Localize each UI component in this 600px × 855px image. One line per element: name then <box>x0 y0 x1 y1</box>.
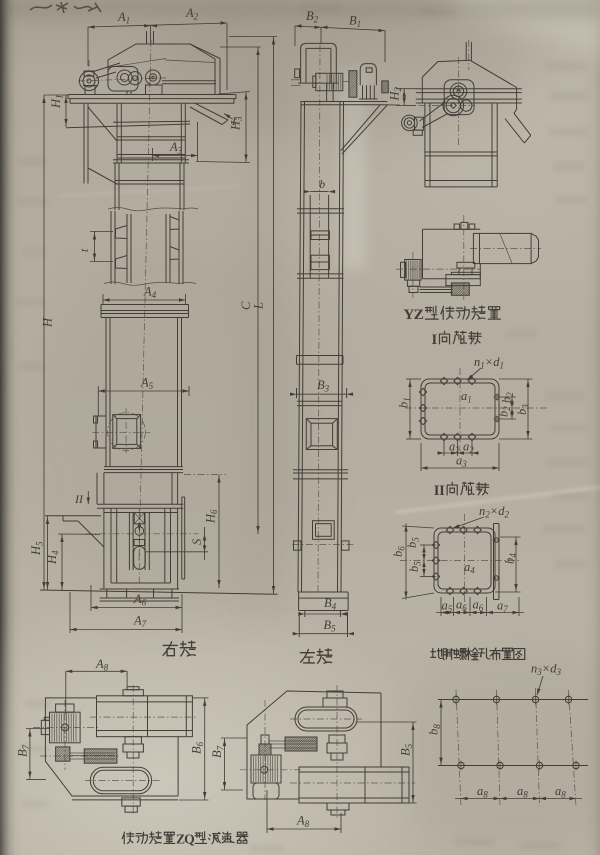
svg-text:a7: a7 <box>497 599 508 615</box>
svg-text:b4: b4 <box>503 553 519 564</box>
svg-text:A7: A7 <box>133 614 147 630</box>
svg-text:A1: A1 <box>117 10 130 26</box>
svg-text:H2: H2 <box>388 86 404 101</box>
svg-text:B1: B1 <box>349 14 361 30</box>
svg-text:I: I <box>439 483 445 499</box>
svg-text:a6: a6 <box>456 598 467 614</box>
svg-text:II: II <box>74 492 84 506</box>
svg-text:H6: H6 <box>204 509 220 524</box>
svg-text:A2: A2 <box>185 6 199 22</box>
svg-text:A3: A3 <box>169 140 183 156</box>
svg-text:b3: b3 <box>515 404 531 415</box>
svg-text:a3: a3 <box>456 454 467 470</box>
svg-text:a8: a8 <box>517 784 528 800</box>
svg-text:a8: a8 <box>477 784 488 800</box>
svg-text:a8: a8 <box>555 784 566 800</box>
svg-text:B5: B5 <box>399 743 415 756</box>
svg-text:Q: Q <box>184 831 195 846</box>
svg-text:H5: H5 <box>29 541 45 556</box>
svg-text:L: L <box>252 302 266 310</box>
svg-text:a5: a5 <box>442 599 453 615</box>
svg-text:B5: B5 <box>324 618 337 634</box>
svg-text:b1: b1 <box>397 397 413 408</box>
svg-text:A8: A8 <box>296 814 310 830</box>
svg-text:C: C <box>239 301 253 310</box>
svg-text:S: S <box>190 538 204 545</box>
svg-text:B6: B6 <box>190 741 206 754</box>
svg-text:A6: A6 <box>133 592 147 608</box>
svg-text:A5: A5 <box>140 376 154 392</box>
svg-text:a1: a1 <box>461 389 472 405</box>
svg-text:H: H <box>41 317 55 328</box>
svg-text:n3×d3: n3×d3 <box>531 662 561 678</box>
svg-text:a4: a4 <box>464 560 475 576</box>
svg-text:a2: a2 <box>463 440 474 456</box>
svg-text:Z: Z <box>414 306 424 323</box>
svg-text:B2: B2 <box>306 9 319 25</box>
svg-text:b8: b8 <box>427 724 443 735</box>
svg-text:b5: b5 <box>407 561 423 572</box>
svg-text:b5: b5 <box>405 537 421 548</box>
svg-text:a6: a6 <box>473 598 484 614</box>
svg-text:B7: B7 <box>16 744 32 757</box>
svg-text:I: I <box>431 332 437 348</box>
svg-text:b: b <box>319 179 325 191</box>
svg-text:b2: b2 <box>500 392 516 403</box>
svg-text:H1: H1 <box>49 94 65 109</box>
svg-text:t: t <box>79 248 91 252</box>
svg-text:A8: A8 <box>95 657 109 673</box>
svg-text:n1×d1: n1×d1 <box>474 355 504 371</box>
svg-text:B7: B7 <box>210 745 226 758</box>
